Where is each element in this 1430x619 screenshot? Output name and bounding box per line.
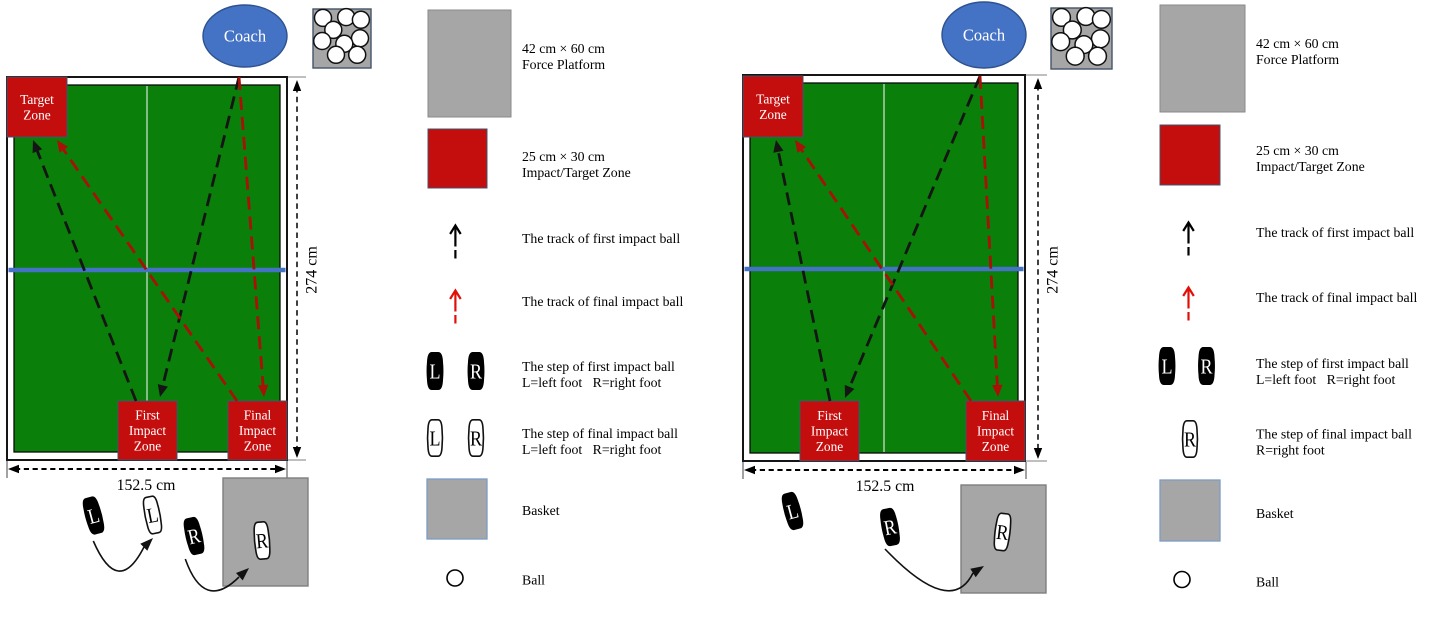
svg-text:Zone: Zone: [982, 439, 1010, 454]
svg-text:152.5 cm: 152.5 cm: [856, 478, 916, 495]
svg-text:42 cm × 60 cm: 42 cm × 60 cm: [522, 41, 605, 56]
svg-text:L=left foot R=right foot: L=left foot R=right foot: [522, 375, 661, 390]
svg-text:Coach: Coach: [963, 26, 1006, 45]
svg-text:Force Platform: Force Platform: [522, 57, 605, 72]
svg-text:R=right foot: R=right foot: [1256, 443, 1325, 458]
svg-text:The step of final impact ball: The step of final impact ball: [522, 426, 678, 441]
svg-text:Zone: Zone: [759, 107, 787, 122]
svg-text:First: First: [135, 408, 160, 423]
svg-text:L=left foot R=right foot: L=left foot R=right foot: [522, 442, 661, 457]
svg-text:L: L: [1161, 355, 1172, 379]
svg-text:152.5 cm: 152.5 cm: [117, 477, 177, 494]
svg-text:Impact: Impact: [129, 423, 166, 438]
svg-text:Final: Final: [982, 408, 1010, 423]
svg-text:Ball: Ball: [1256, 575, 1279, 590]
svg-text:Zone: Zone: [816, 439, 844, 454]
svg-text:Impact: Impact: [977, 424, 1014, 439]
svg-text:Basket: Basket: [1256, 506, 1294, 521]
svg-text:The track of first impact ball: The track of first impact ball: [522, 231, 680, 246]
svg-text:R: R: [1200, 355, 1213, 379]
svg-text:25 cm × 30 cm: 25 cm × 30 cm: [522, 149, 605, 164]
svg-text:The track of final impact ball: The track of final impact ball: [522, 294, 683, 309]
svg-text:L: L: [429, 427, 440, 451]
svg-text:42 cm × 60 cm: 42 cm × 60 cm: [1256, 36, 1339, 51]
svg-text:Final: Final: [244, 408, 272, 423]
svg-text:25 cm × 30 cm: 25 cm × 30 cm: [1256, 143, 1339, 158]
svg-text:Basket: Basket: [522, 503, 560, 518]
svg-text:Target: Target: [756, 91, 790, 106]
svg-text:First: First: [817, 408, 842, 423]
svg-text:274 cm: 274 cm: [304, 246, 321, 294]
svg-text:L: L: [429, 360, 440, 384]
svg-text:Force Platform: Force Platform: [1256, 52, 1339, 67]
svg-text:Zone: Zone: [23, 107, 51, 122]
svg-text:Impact/Target Zone: Impact/Target Zone: [522, 165, 631, 180]
svg-text:Impact: Impact: [239, 423, 276, 438]
svg-text:Zone: Zone: [134, 439, 162, 454]
svg-text:Coach: Coach: [224, 27, 267, 46]
svg-text:The track of first impact ball: The track of first impact ball: [1256, 225, 1414, 240]
svg-text:The step of first impact ball: The step of first impact ball: [1256, 356, 1409, 371]
svg-text:Ball: Ball: [522, 573, 545, 588]
svg-text:The track of final impact ball: The track of final impact ball: [1256, 290, 1417, 305]
svg-text:L=left foot R=right foot: L=left foot R=right foot: [1256, 372, 1395, 387]
svg-text:R: R: [1184, 428, 1197, 452]
svg-text:R: R: [470, 427, 483, 451]
svg-text:The step of final impact ball: The step of final impact ball: [1256, 427, 1412, 442]
svg-text:R: R: [470, 360, 483, 384]
svg-text:274 cm: 274 cm: [1045, 246, 1062, 294]
svg-text:Zone: Zone: [244, 439, 272, 454]
svg-text:The step of first impact ball: The step of first impact ball: [522, 359, 675, 374]
svg-text:Target: Target: [20, 92, 54, 107]
svg-text:Impact: Impact: [811, 424, 848, 439]
svg-text:Impact/Target Zone: Impact/Target Zone: [1256, 159, 1365, 174]
